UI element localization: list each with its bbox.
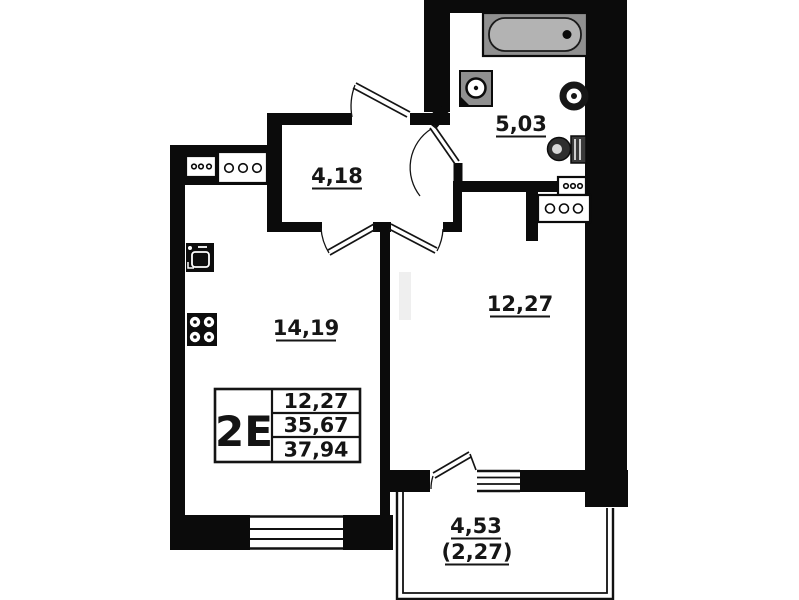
door-swing-arc bbox=[437, 229, 443, 251]
window-opening bbox=[250, 515, 343, 550]
door-leaf bbox=[389, 229, 435, 253]
vent-block-kitchen-small bbox=[186, 156, 216, 177]
vent-hole-icon bbox=[199, 164, 204, 169]
door-leaf bbox=[356, 83, 410, 112]
room-area-label: 12,27 bbox=[487, 292, 553, 316]
door-swing-arc bbox=[351, 85, 355, 117]
vent-hole-icon bbox=[207, 164, 212, 169]
vent-hole-icon bbox=[192, 164, 197, 169]
door-leaf bbox=[435, 457, 471, 478]
vent-hole-icon bbox=[560, 204, 569, 213]
wall-segment bbox=[170, 145, 185, 550]
wall-segment bbox=[453, 181, 558, 192]
bathtub-icon bbox=[483, 13, 587, 56]
bathroom-area-label: 5,03 bbox=[495, 112, 547, 136]
door-leaf bbox=[470, 454, 476, 470]
stove-burner-dot bbox=[207, 335, 211, 339]
wall-segment bbox=[526, 181, 538, 241]
vent-block-bathroom-small bbox=[558, 177, 586, 195]
door-leaf bbox=[430, 128, 455, 164]
toilet-bowl-inner bbox=[552, 144, 562, 154]
toilet-icon bbox=[548, 136, 587, 163]
info-table-value-room: 12,27 bbox=[284, 389, 349, 413]
kitchen-window bbox=[250, 515, 343, 550]
vent-hole-icon bbox=[253, 164, 262, 173]
vent-hole-icon bbox=[225, 164, 234, 173]
wall-segment bbox=[585, 0, 627, 507]
wall-segment bbox=[424, 0, 450, 112]
kitchen-area-label: 14,19 bbox=[273, 316, 339, 340]
water-heater-center bbox=[571, 93, 577, 99]
hallway-area-label: 4,18 bbox=[311, 164, 363, 188]
balcony-area-label: 4,53 bbox=[450, 514, 502, 538]
wall-segment bbox=[585, 470, 628, 507]
kitchen-sink-icon bbox=[186, 243, 214, 272]
unit-type-label: 2E bbox=[215, 407, 273, 456]
wall-segment bbox=[267, 113, 282, 232]
bathroom-door bbox=[410, 125, 459, 196]
stove-icon bbox=[187, 313, 217, 346]
stove-burner-dot bbox=[193, 335, 197, 339]
floor-plan: 4,18 5,03 14,19 12,27 4,53 (2,27) 2E 12,… bbox=[0, 0, 799, 600]
vent-block-bathroom-large bbox=[538, 195, 590, 222]
washbasin-icon bbox=[460, 71, 492, 106]
bathtub-drain bbox=[563, 30, 572, 39]
wall-segment bbox=[410, 113, 450, 125]
wall-segment bbox=[267, 222, 322, 232]
kitchen-door bbox=[321, 224, 376, 255]
vent-hole-icon bbox=[564, 184, 569, 189]
toilet-tank bbox=[571, 136, 586, 163]
water-heater-icon bbox=[563, 85, 585, 107]
door-leaf bbox=[328, 224, 374, 250]
room-labels: 4,18 5,03 14,19 12,27 4,53 (2,27) bbox=[273, 112, 553, 565]
vent-hole-icon bbox=[239, 164, 248, 173]
vent-block-kitchen-large bbox=[218, 152, 267, 183]
door-swing-arc bbox=[431, 476, 433, 489]
balcony-door bbox=[431, 452, 476, 489]
unit-info-table: 2E 12,27 35,67 37,94 bbox=[215, 389, 360, 462]
vent-hole-icon bbox=[574, 204, 583, 213]
door-leaf bbox=[391, 224, 437, 248]
stove-burner-dot bbox=[193, 320, 197, 324]
door-leaf bbox=[433, 452, 469, 473]
balcony-counted-area-label: (2,27) bbox=[441, 540, 512, 564]
vent-hole-icon bbox=[571, 184, 576, 189]
door-leaf bbox=[330, 229, 376, 255]
info-table-value-total: 37,94 bbox=[284, 438, 349, 462]
balcony-window bbox=[477, 471, 520, 491]
scan-artifact bbox=[399, 272, 411, 320]
stove-body bbox=[187, 313, 217, 346]
floor-plan-svg: 4,18 5,03 14,19 12,27 4,53 (2,27) 2E 12,… bbox=[0, 0, 799, 600]
wall-segment bbox=[520, 470, 585, 492]
info-table-value-living: 35,67 bbox=[284, 413, 349, 437]
vent-hole-icon bbox=[546, 204, 555, 213]
door-leaf bbox=[353, 88, 407, 117]
washbasin-drain bbox=[474, 86, 478, 90]
kitchen-sink-tap bbox=[188, 246, 192, 250]
vent-hole-icon bbox=[578, 184, 583, 189]
room-door bbox=[389, 224, 443, 253]
door-leaf bbox=[434, 125, 459, 161]
entry-door bbox=[351, 83, 410, 117]
stove-burner-dot bbox=[207, 320, 211, 324]
wall-segment bbox=[380, 470, 430, 492]
wall-segment bbox=[443, 222, 462, 232]
door-swing-arc bbox=[410, 129, 431, 196]
